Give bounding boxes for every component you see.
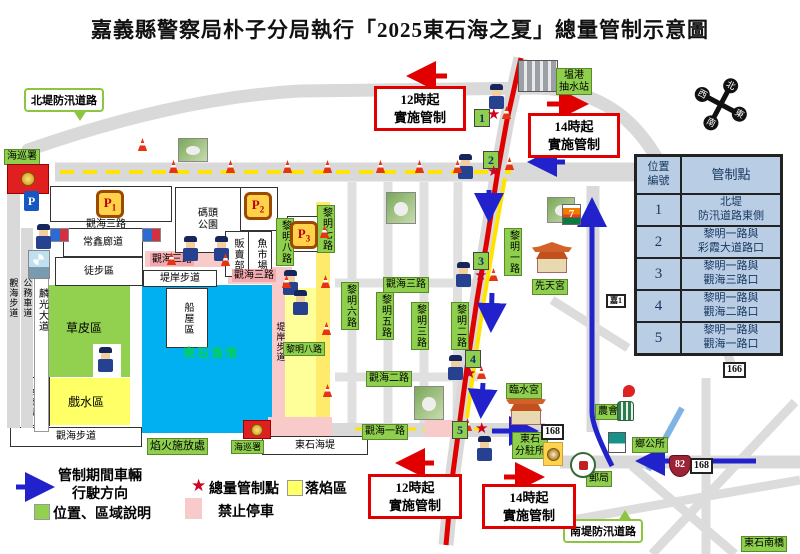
- police-officer-icon: [98, 347, 113, 373]
- xiantian-temple-image: [532, 242, 572, 274]
- boathouse-label: 船屋區: [181, 302, 193, 335]
- post-office-logo: [570, 452, 596, 478]
- linguang-ave-road: [34, 258, 49, 432]
- control-point-5-number: 5: [452, 421, 468, 439]
- grass-zone-label: 草皮區: [66, 322, 102, 336]
- no-parking-strip-4: [268, 417, 332, 438]
- police-badge: [543, 442, 563, 466]
- traffic-control-map: 嘉義縣警察局朴子分局執行「2025東石海之夏」總量管制示意圖: [0, 0, 800, 554]
- seven-eleven-logo: 7: [562, 204, 581, 225]
- guanhai-3-white-label: 觀海三路: [86, 219, 126, 231]
- legend-direction-text: 管制期間車輛行駛方向: [58, 468, 142, 504]
- pedestrian-zone-block: 徒步區: [55, 257, 143, 286]
- xiantian-temple-label: 先天宮: [532, 279, 568, 295]
- table-row-point: 黎明一路與觀海三路口: [681, 258, 781, 290]
- legend-no-parking-swatch: [185, 498, 202, 519]
- county-road-jia1-sign: 嘉1: [606, 294, 626, 308]
- table-row-no: 4: [636, 290, 681, 322]
- legend-control-point-star: ★: [191, 477, 206, 494]
- route-166-sign: 166: [723, 362, 746, 378]
- guanhai-1-label: 觀海一路: [362, 424, 408, 440]
- pedestrian-zone-label: 徒步區: [84, 266, 114, 278]
- coast-guard-badge: [7, 164, 49, 194]
- police-officer-cp3: [456, 262, 471, 288]
- control-point-1-star: ★: [487, 108, 500, 123]
- fireworks-area-label: 焰火施放處: [147, 438, 208, 455]
- route-168-sign: 168: [541, 424, 564, 440]
- liming-5-label: 黎明五路: [376, 292, 394, 340]
- coast-guard-bottom-label: 海巡署: [231, 440, 264, 454]
- legend-area-text: 位置、區域說明: [53, 503, 151, 523]
- no-parking-strip-5: [425, 420, 455, 437]
- police-officer-icon: [293, 290, 308, 316]
- control-point-table: 位置編號 管制點 1 北堤防汛道路東側 2 黎明一路與彩霞大道路口 3 黎明一路…: [634, 154, 783, 356]
- police-officer-icon: [36, 224, 51, 250]
- notice-12h-bottom: 12時起實施管制: [368, 474, 462, 519]
- police-officer-cp4: [448, 355, 463, 381]
- restroom-icon: [142, 228, 161, 242]
- notice-14h-top: 14時起實施管制: [528, 113, 620, 158]
- guanhai-walk-label: 觀海步道: [56, 431, 96, 443]
- parking-p3-icon: P3: [290, 221, 318, 249]
- table-row-point: 北堤防汛道路東側: [681, 194, 781, 226]
- boathouse-block: 船屋區: [166, 288, 208, 348]
- gongwu-lane-label: 公務車道: [22, 278, 32, 318]
- flow-arrow-south-3: [481, 383, 483, 414]
- liming-8-h-label: 黎明八路: [283, 342, 325, 356]
- table-row-no: 1: [636, 194, 681, 226]
- guanhai-3-label: 觀海三路: [383, 277, 429, 293]
- guanhai-3-pink2-label: 觀海三路: [232, 269, 276, 282]
- table-row-no: 5: [636, 322, 681, 354]
- south-bridge-label: 東石南橋: [741, 536, 787, 552]
- guanhai-2-label: 觀海二路: [366, 371, 412, 387]
- port-name-label: 東石漁港: [183, 347, 239, 361]
- bank-walk-label: 堤岸步道: [160, 273, 200, 285]
- control-point-4-star: ★: [463, 367, 476, 382]
- liming-1-label: 黎明一路: [504, 228, 522, 276]
- table-row-point: 黎明一路與彩霞大道路口: [681, 226, 781, 258]
- control-point-2-star: ★: [487, 165, 500, 180]
- changxin-corridor-block: 常鑫廊道: [63, 228, 143, 257]
- liming-2-label: 黎明二路: [451, 302, 469, 350]
- table-header-point: 管制點: [681, 156, 781, 194]
- legend-no-parking-text: 禁止停車: [218, 501, 274, 521]
- parking-sign-blue: P: [24, 191, 39, 211]
- linguang-ave-label: 麟光大道: [36, 288, 48, 332]
- windmill-photo: [28, 250, 50, 279]
- township-office-logo: [608, 432, 626, 453]
- police-officer-cp5: [477, 436, 492, 462]
- control-point-3-star: ★: [474, 269, 487, 284]
- scooter-photo: [178, 138, 208, 162]
- coast-guard-top-label: 海巡署: [4, 149, 40, 165]
- notice-12h-top: 12時起實施管制: [374, 86, 466, 131]
- farmers-association-building-icon: [617, 401, 634, 421]
- liming-6-label: 黎明六路: [341, 282, 359, 330]
- restroom-icon: [50, 228, 69, 242]
- vendor-label: 販賣部: [231, 238, 243, 271]
- bank-walk-block: 堤岸步道: [143, 270, 217, 287]
- table-row-no: 2: [636, 226, 681, 258]
- seawall-bar: 東石海堤: [262, 436, 368, 455]
- table-row-point: 黎明一路與觀海一路口: [681, 322, 781, 354]
- scooter-photo: [386, 192, 416, 224]
- legend-control-point-text: 總量管制點: [209, 478, 279, 498]
- route-168-sign-2: 168: [690, 458, 713, 474]
- linshui-temple-label: 臨水宮: [506, 383, 542, 399]
- changxin-corridor-label: 常鑫廊道: [83, 237, 123, 249]
- pump-station-label: 塭港抽水站: [556, 68, 592, 95]
- table-row-no: 3: [636, 258, 681, 290]
- police-motorcycle-photo: [414, 386, 444, 420]
- parking-p2-icon: P2: [244, 192, 272, 220]
- table-header-no: 位置編號: [636, 156, 681, 194]
- police-officer-cp2: [458, 154, 473, 180]
- legend-ember-swatch: [287, 480, 303, 496]
- pier-park-label: 碼頭: [198, 208, 218, 219]
- township-office-label: 鄉公所: [632, 437, 668, 453]
- farmers-association-logo: [623, 385, 635, 397]
- police-officer-icon: [183, 236, 198, 262]
- north-dike-callout: 北堤防汛道路: [24, 88, 104, 112]
- liming-3-label: 黎明三路: [411, 302, 429, 350]
- parking-p1-icon: P1: [96, 190, 124, 218]
- guanhai-walk-v-label: 觀海步道: [8, 278, 18, 318]
- linshui-temple-image: [506, 394, 546, 426]
- flow-arrow-south-2: [491, 293, 492, 328]
- fish-market-label: 魚市場: [254, 238, 266, 271]
- notice-14h-bottom: 14時起實施管制: [482, 484, 576, 529]
- control-point-5-star: ★: [475, 422, 488, 437]
- pump-station-photo: [518, 60, 558, 92]
- table-row-point: 黎明一路與觀海二路口: [681, 290, 781, 322]
- legend-area-swatch: [34, 504, 50, 520]
- water-play-label: 戲水區: [68, 396, 104, 410]
- legend-ember-text: 落焰區: [305, 478, 347, 498]
- guanhai-walk-bar: 觀海步道: [10, 427, 142, 447]
- coast-guard-badge-small: [243, 420, 271, 439]
- seawall-label: 東石海堤: [295, 440, 335, 452]
